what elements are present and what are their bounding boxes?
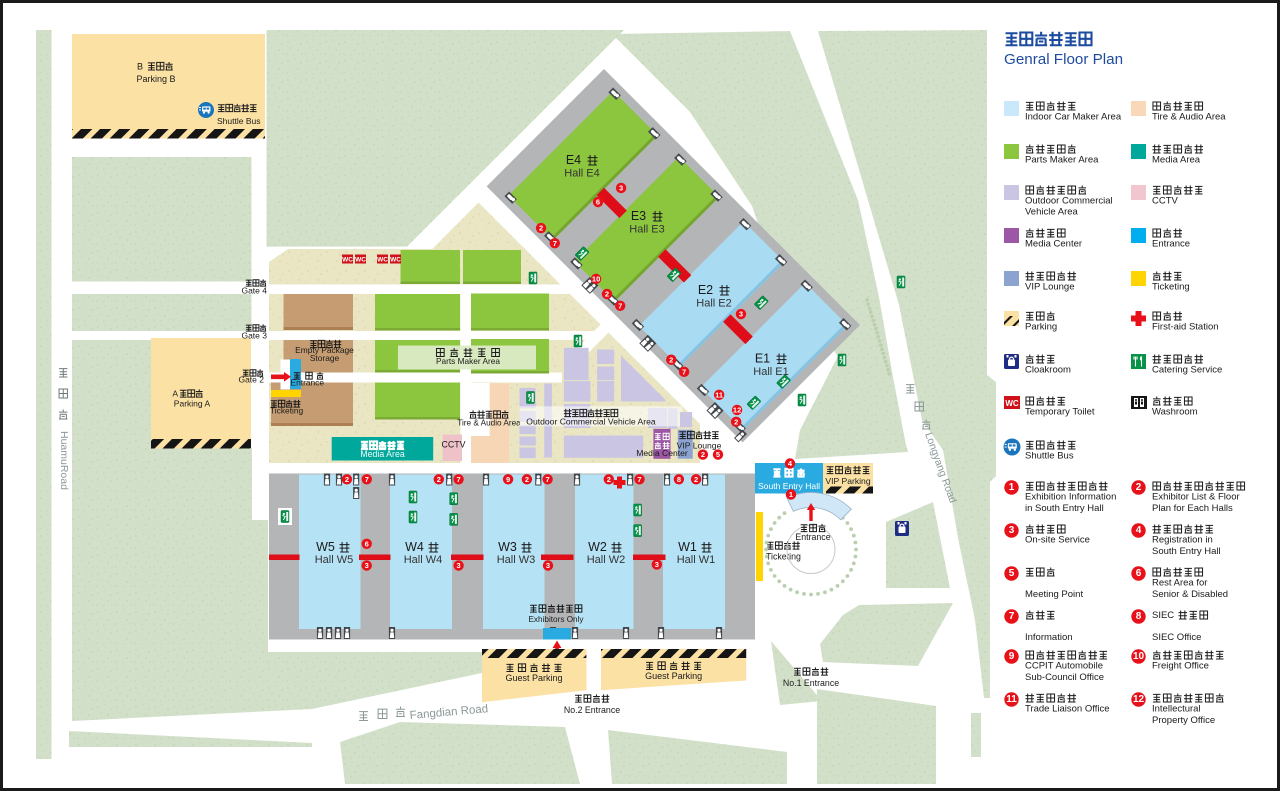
svg-text:Parking: Parking <box>1025 322 1057 333</box>
svg-text:2: 2 <box>607 475 611 484</box>
svg-text:SIEC Office: SIEC Office <box>1152 632 1201 643</box>
svg-text:7: 7 <box>365 475 369 484</box>
svg-text:1: 1 <box>789 490 793 499</box>
svg-text:Media Area: Media Area <box>1152 155 1201 166</box>
svg-text:Ticketing: Ticketing <box>270 406 304 416</box>
svg-text:E3: E3 <box>631 209 646 223</box>
svg-text:W1: W1 <box>678 540 697 554</box>
svg-text:Parts Maker Area: Parts Maker Area <box>436 356 500 366</box>
svg-text:in South Entry Hall: in South Entry Hall <box>1025 503 1104 514</box>
svg-text:Gate 2: Gate 2 <box>238 375 264 385</box>
svg-text:Parts Maker Area: Parts Maker Area <box>1025 155 1099 166</box>
svg-text:2: 2 <box>605 290 609 299</box>
svg-text:2: 2 <box>437 475 441 484</box>
svg-text:W3: W3 <box>498 540 517 554</box>
svg-text:8: 8 <box>1136 611 1142 622</box>
svg-text:5: 5 <box>1009 568 1015 579</box>
svg-text:First-aid Station: First-aid Station <box>1152 322 1219 333</box>
svg-text:12: 12 <box>733 406 741 415</box>
svg-text:Hall E1: Hall E1 <box>753 366 788 378</box>
svg-text:Indoor Car Maker Area: Indoor Car Maker Area <box>1025 112 1122 123</box>
svg-text:CCPIT Automobile: CCPIT Automobile <box>1025 661 1103 672</box>
svg-text:Shuttle Bus: Shuttle Bus <box>1025 451 1074 462</box>
svg-text:Gate 3: Gate 3 <box>241 331 267 341</box>
svg-text:6: 6 <box>596 198 600 207</box>
svg-text:3: 3 <box>655 560 659 569</box>
svg-text:12: 12 <box>1133 694 1145 705</box>
svg-text:7: 7 <box>457 475 461 484</box>
svg-text:Tire & Audio Area: Tire & Audio Area <box>1152 112 1226 123</box>
svg-text:7: 7 <box>546 475 550 484</box>
svg-text:Media Area: Media Area <box>360 449 405 459</box>
svg-text:Property Office: Property Office <box>1152 715 1215 726</box>
svg-text:Cloakroom: Cloakroom <box>1025 365 1071 376</box>
svg-text:9: 9 <box>1009 651 1015 662</box>
svg-text:11: 11 <box>1006 694 1017 705</box>
svg-text:Trade Liaison Office: Trade Liaison Office <box>1025 704 1110 715</box>
svg-text:9: 9 <box>506 475 510 484</box>
svg-text:Hall W1: Hall W1 <box>677 554 716 566</box>
svg-text:2: 2 <box>345 475 349 484</box>
svg-text:Meeting Point: Meeting Point <box>1025 589 1083 600</box>
svg-text:Entrance: Entrance <box>291 378 325 388</box>
svg-text:Entrance: Entrance <box>1152 239 1190 250</box>
svg-text:Senior & Disabled: Senior & Disabled <box>1152 589 1228 600</box>
svg-text:Information: Information <box>1025 632 1073 643</box>
svg-text:8: 8 <box>677 475 681 484</box>
svg-text:E1: E1 <box>755 352 770 366</box>
svg-text:Guest Parking: Guest Parking <box>505 673 562 683</box>
svg-text:Intellectural: Intellectural <box>1152 704 1201 715</box>
svg-text:Hall E4: Hall E4 <box>564 168 599 180</box>
svg-text:3: 3 <box>365 561 369 570</box>
svg-text:Hall W5: Hall W5 <box>315 554 354 566</box>
svg-text:Rest Area for: Rest Area for <box>1152 578 1207 589</box>
svg-text:Storage: Storage <box>310 353 340 363</box>
svg-text:No.2 Entrance: No.2 Entrance <box>564 705 620 715</box>
svg-text:1: 1 <box>1009 482 1015 493</box>
svg-text:7: 7 <box>553 239 557 248</box>
svg-text:WC: WC <box>1005 399 1019 408</box>
svg-text:Freight Office: Freight Office <box>1152 661 1209 672</box>
svg-text:2: 2 <box>734 417 738 426</box>
svg-text:Parking B: Parking B <box>136 74 175 84</box>
svg-text:3: 3 <box>739 310 743 319</box>
svg-text:VIP Lounge: VIP Lounge <box>677 441 722 451</box>
svg-text:Ticketing: Ticketing <box>766 552 801 562</box>
svg-text:W5: W5 <box>316 540 335 554</box>
svg-text:Shuttle Bus: Shuttle Bus <box>217 116 260 126</box>
svg-text:2: 2 <box>539 224 543 233</box>
svg-text:CCTV: CCTV <box>1152 196 1179 207</box>
svg-text:CCTV: CCTV <box>442 440 466 450</box>
svg-text:E2: E2 <box>698 283 713 297</box>
svg-text:W2: W2 <box>588 540 607 554</box>
svg-text:3: 3 <box>457 561 461 570</box>
svg-text:No.1 Entrance: No.1 Entrance <box>783 678 839 688</box>
svg-text:2: 2 <box>694 475 698 484</box>
svg-text:Plan for Each Halls: Plan for Each Halls <box>1152 503 1233 514</box>
svg-text:Temporary Toilet: Temporary Toilet <box>1025 407 1095 418</box>
svg-text:Vehicle Area: Vehicle Area <box>1025 207 1079 218</box>
svg-text:3: 3 <box>619 184 623 193</box>
svg-text:Catering Service: Catering Service <box>1152 365 1222 376</box>
svg-text:Tire & Audio Area: Tire & Audio Area <box>457 419 521 428</box>
svg-text:Outdoor Commercial: Outdoor Commercial <box>1025 196 1113 207</box>
svg-text:10: 10 <box>592 274 600 283</box>
svg-text:10: 10 <box>1133 651 1145 662</box>
svg-text:6: 6 <box>365 539 369 548</box>
svg-text:B: B <box>137 62 143 72</box>
svg-text:2: 2 <box>525 475 529 484</box>
svg-text:Registration in: Registration in <box>1152 535 1213 546</box>
svg-text:E4: E4 <box>566 153 581 167</box>
svg-text:Parking A: Parking A <box>174 399 211 409</box>
svg-text:SIEC: SIEC <box>1152 610 1174 621</box>
svg-text:Exhibition Information: Exhibition Information <box>1025 492 1116 503</box>
svg-text:VIP Lounge: VIP Lounge <box>1025 282 1074 293</box>
svg-text:Outdoor Commercial Vehicle Are: Outdoor Commercial Vehicle Area <box>526 417 656 427</box>
svg-text:Hall W2: Hall W2 <box>587 554 626 566</box>
svg-text:2: 2 <box>1136 482 1142 493</box>
svg-text:W4: W4 <box>405 540 424 554</box>
svg-text:2: 2 <box>669 355 673 364</box>
svg-text:Hall W4: Hall W4 <box>404 554 443 566</box>
svg-text:Ticketing: Ticketing <box>1152 282 1190 293</box>
svg-text:11: 11 <box>715 390 723 399</box>
svg-text:Gate 4: Gate 4 <box>241 286 267 296</box>
svg-text:3: 3 <box>546 561 550 570</box>
svg-text:Hall E2: Hall E2 <box>696 298 731 310</box>
svg-text:Entrance: Entrance <box>795 532 830 542</box>
svg-text:7: 7 <box>637 475 641 484</box>
svg-text:Hall W3: Hall W3 <box>497 554 536 566</box>
svg-text:Guest Parking: Guest Parking <box>645 671 702 681</box>
svg-text:2: 2 <box>701 450 705 459</box>
svg-text:Sub-Council Office: Sub-Council Office <box>1025 672 1104 683</box>
svg-text:Genral Floor Plan: Genral Floor Plan <box>1004 51 1123 68</box>
svg-text:A: A <box>172 389 178 399</box>
svg-text:6: 6 <box>1136 568 1142 579</box>
svg-text:Washroom: Washroom <box>1152 407 1198 418</box>
svg-text:Hall E3: Hall E3 <box>629 224 664 236</box>
svg-text:On-site Service: On-site Service <box>1025 535 1090 546</box>
svg-text:3: 3 <box>1009 525 1015 536</box>
svg-text:7: 7 <box>682 367 686 376</box>
svg-text:5: 5 <box>716 450 720 459</box>
svg-text:Media Center: Media Center <box>1025 239 1082 250</box>
svg-text:Exhibitors Only: Exhibitors Only <box>528 615 584 624</box>
svg-text:South Entry Hall: South Entry Hall <box>1152 546 1221 557</box>
svg-text:7: 7 <box>1009 611 1015 622</box>
svg-text:VIP Parking: VIP Parking <box>825 476 870 486</box>
svg-text:HuamuRoad: HuamuRoad <box>58 431 70 490</box>
svg-text:4: 4 <box>1136 525 1142 536</box>
svg-text:Exhibitor List & Floor: Exhibitor List & Floor <box>1152 492 1240 503</box>
svg-text:7: 7 <box>618 301 622 310</box>
